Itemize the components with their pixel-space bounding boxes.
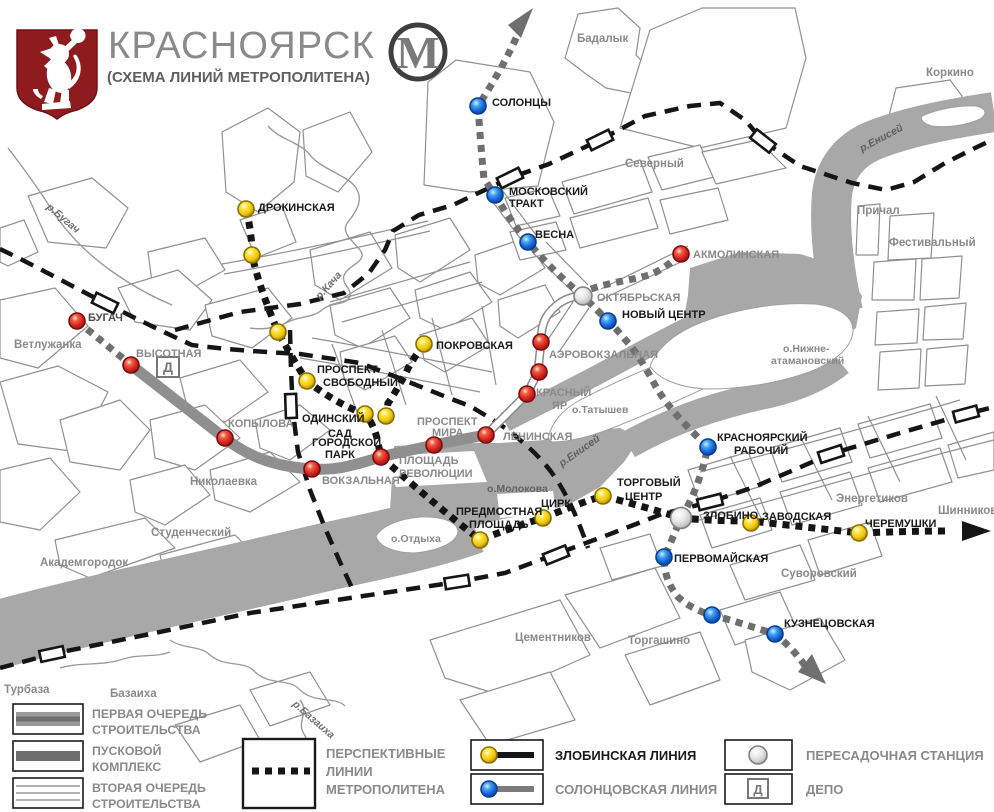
svg-text:Академгородок: Академгородок <box>40 557 128 569</box>
svg-text:Северный: Северный <box>625 158 684 170</box>
svg-text:СТРОИТЕЛЬСТВА: СТРОИТЕЛЬСТВА <box>92 723 201 737</box>
svg-text:ЯР: ЯР <box>552 400 567 412</box>
svg-text:атамановский: атамановский <box>771 355 844 367</box>
svg-text:КРАСНОЯРСКИЙ: КРАСНОЯРСКИЙ <box>717 431 808 444</box>
svg-text:М: М <box>396 27 439 78</box>
svg-text:ВЫСОТНАЯ: ВЫСОТНАЯ <box>136 348 202 360</box>
svg-text:Причал: Причал <box>857 205 900 217</box>
svg-text:ВТОРАЯ ОЧЕРЕДЬ: ВТОРАЯ ОЧЕРЕДЬ <box>92 781 206 795</box>
svg-text:Цементников: Цементников <box>515 632 591 644</box>
svg-text:ОДИНСКИЙ: ОДИНСКИЙ <box>302 412 365 425</box>
svg-text:КУЗНЕЦОВСКАЯ: КУЗНЕЦОВСКАЯ <box>784 618 875 630</box>
svg-text:КОПЫЛОВА: КОПЫЛОВА <box>228 418 294 430</box>
svg-text:ЦЕНТР: ЦЕНТР <box>625 491 662 503</box>
svg-text:АЭРОВОКЗАЛЬНАЯ: АЭРОВОКЗАЛЬНАЯ <box>549 349 658 361</box>
svg-text:(СХЕМА ЛИНИЙ МЕТРОПОЛИТЕНА): (СХЕМА ЛИНИЙ МЕТРОПОЛИТЕНА) <box>107 68 370 86</box>
svg-text:КРАСНОЯРСК: КРАСНОЯРСК <box>108 25 375 67</box>
svg-text:Суворовский: Суворовский <box>781 568 857 580</box>
svg-text:КРАСНЫЙ: КРАСНЫЙ <box>536 386 591 399</box>
svg-text:ПЛОЩАДЬ: ПЛОЩАДЬ <box>469 519 529 531</box>
svg-text:МЕТРОПОЛИТЕНА: МЕТРОПОЛИТЕНА <box>326 782 446 797</box>
svg-text:ПРЕДМОСТНАЯ: ПРЕДМОСТНАЯ <box>456 506 542 518</box>
svg-text:СТРОИТЕЛЬСТВА: СТРОИТЕЛЬСТВА <box>92 797 201 811</box>
svg-text:ПЕРВАЯ ОЧЕРЕДЬ: ПЕРВАЯ ОЧЕРЕДЬ <box>92 707 207 721</box>
svg-text:ЛЕНИНСКАЯ: ЛЕНИНСКАЯ <box>503 431 572 443</box>
svg-text:ГОРОДСКОЙ: ГОРОДСКОЙ <box>312 436 381 449</box>
svg-text:ЗЛОБИНСКАЯ ЛИНИЯ: ЗЛОБИНСКАЯ ЛИНИЯ <box>555 748 696 763</box>
svg-text:Энергетиков: Энергетиков <box>836 493 908 505</box>
svg-text:Студенческий: Студенческий <box>151 527 231 539</box>
svg-text:ДРОКИНСКАЯ: ДРОКИНСКАЯ <box>258 202 335 214</box>
svg-text:Турбаза: Турбаза <box>4 684 50 696</box>
svg-text:ПЕРСПЕКТИВНЫЕ: ПЕРСПЕКТИВНЫЕ <box>326 746 446 761</box>
svg-text:Шинников: Шинников <box>938 505 994 517</box>
svg-text:Коркино: Коркино <box>926 67 974 79</box>
svg-text:ПУСКОВОЙ: ПУСКОВОЙ <box>92 743 162 758</box>
svg-text:Д: Д <box>753 782 763 797</box>
svg-text:Николаевка: Николаевка <box>190 476 258 488</box>
svg-text:о.Татышев: о.Татышев <box>572 404 629 416</box>
svg-text:МИРА: МИРА <box>432 427 463 439</box>
svg-text:ЛИНИИ: ЛИНИИ <box>326 764 373 779</box>
svg-text:Ветлужанка: Ветлужанка <box>14 339 82 351</box>
svg-text:БУГАЧ: БУГАЧ <box>88 312 123 324</box>
svg-text:ДЕПО: ДЕПО <box>806 782 843 797</box>
svg-text:ЦИРК: ЦИРК <box>541 498 571 510</box>
svg-text:ПЕРВОМАЙСКАЯ: ПЕРВОМАЙСКАЯ <box>674 552 768 565</box>
svg-text:ВОКЗАЛЬНАЯ: ВОКЗАЛЬНАЯ <box>322 475 400 487</box>
svg-text:ВЕСНА: ВЕСНА <box>535 229 574 241</box>
svg-text:НОВЫЙ ЦЕНТР: НОВЫЙ ЦЕНТР <box>622 308 706 321</box>
svg-text:о.Отдыха: о.Отдыха <box>391 533 441 545</box>
svg-text:ЗЛОБИНО: ЗЛОБИНО <box>703 510 759 522</box>
svg-text:РАБОЧИЙ: РАБОЧИЙ <box>734 444 788 457</box>
svg-text:ПЛОЩАДЬ: ПЛОЩАДЬ <box>399 455 459 467</box>
svg-text:Д: Д <box>163 359 173 375</box>
svg-text:СВОБОДНЫЙ: СВОБОДНЫЙ <box>323 376 398 389</box>
svg-text:ТОРГОВЫЙ: ТОРГОВЫЙ <box>617 476 681 489</box>
svg-text:СОЛОНЦЫ: СОЛОНЦЫ <box>492 97 551 109</box>
svg-text:Фестивальный: Фестивальный <box>889 237 976 249</box>
svg-text:ПАРК: ПАРК <box>325 449 355 461</box>
svg-text:о.Молокова: о.Молокова <box>487 483 548 495</box>
svg-text:РЕВОЛЮЦИИ: РЕВОЛЮЦИИ <box>399 468 473 480</box>
svg-text:о.Нижне-: о.Нижне- <box>783 343 830 355</box>
svg-text:КОМПЛЕКС: КОМПЛЕКС <box>92 760 161 774</box>
svg-text:МОСКОВСКИЙ: МОСКОВСКИЙ <box>509 185 588 198</box>
svg-text:ТРАКТ: ТРАКТ <box>509 198 544 210</box>
svg-text:ПОКРОВСКАЯ: ПОКРОВСКАЯ <box>436 340 513 352</box>
svg-text:СОЛОНЦОВСКАЯ ЛИНИЯ: СОЛОНЦОВСКАЯ ЛИНИЯ <box>555 782 717 797</box>
svg-text:Бадалык: Бадалык <box>577 33 628 45</box>
svg-text:ОКТЯБРЬСКАЯ: ОКТЯБРЬСКАЯ <box>597 292 681 304</box>
svg-text:АКМОЛИНСКАЯ: АКМОЛИНСКАЯ <box>693 249 779 261</box>
svg-text:ПРОСПЕКТ: ПРОСПЕКТ <box>317 364 378 376</box>
svg-text:ЗАВОДСКАЯ: ЗАВОДСКАЯ <box>762 511 831 523</box>
svg-text:Торгашино: Торгашино <box>628 635 690 647</box>
svg-text:Базаиха: Базаиха <box>110 688 157 700</box>
svg-text:ЧЕРЕМУШКИ: ЧЕРЕМУШКИ <box>865 518 937 530</box>
svg-text:ПЕРЕСАДОЧНАЯ СТАНЦИЯ: ПЕРЕСАДОЧНАЯ СТАНЦИЯ <box>806 748 984 763</box>
